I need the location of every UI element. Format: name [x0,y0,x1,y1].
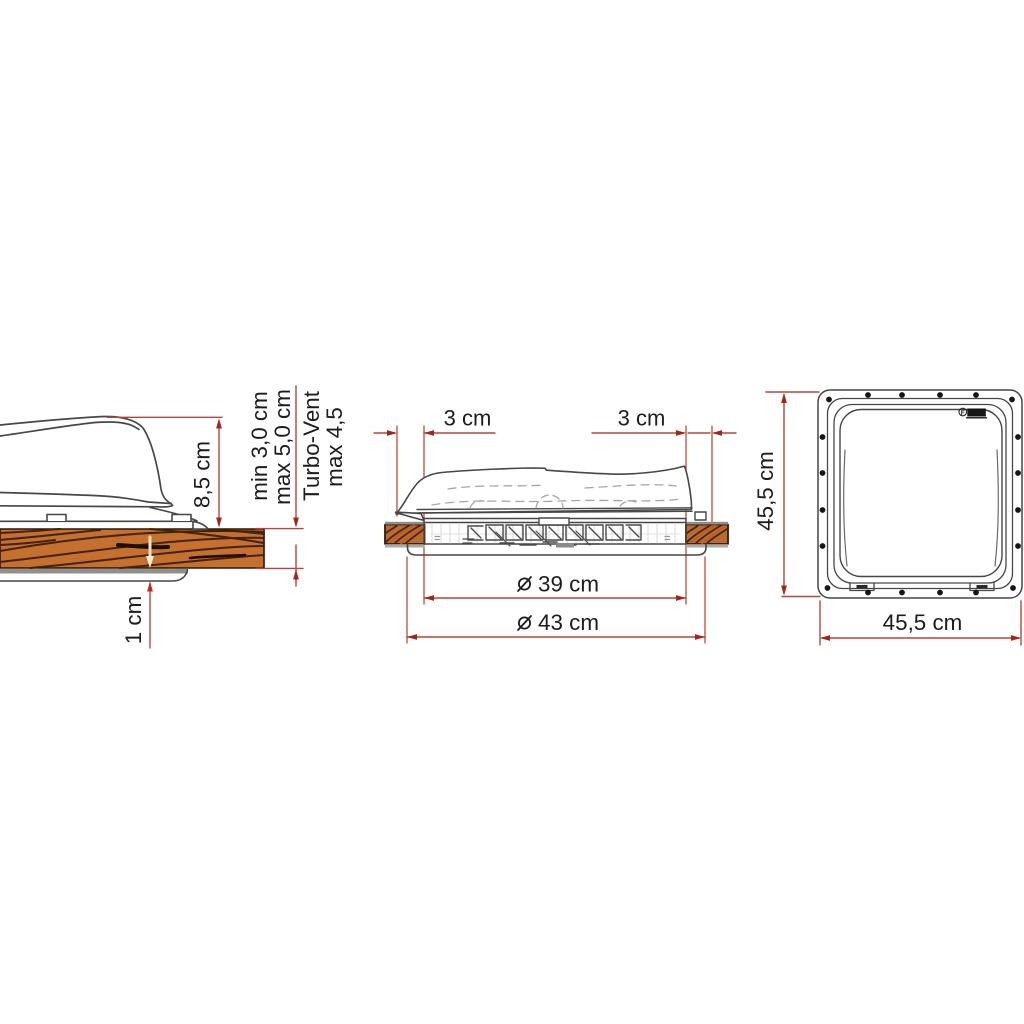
svg-text:F: F [961,410,965,417]
svg-text:43 cm: 43 cm [538,610,599,635]
svg-text:45,5 cm: 45,5 cm [753,451,778,531]
svg-text:Turbo-Vent: Turbo-Vent [299,390,324,501]
svg-text:min 3,0 cm: min 3,0 cm [247,391,272,501]
svg-text:max 4,5: max 4,5 [322,407,347,487]
svg-text:39 cm: 39 cm [538,572,599,597]
svg-text:max 5,0 cm: max 5,0 cm [270,389,295,505]
svg-text:45,5 cm: 45,5 cm [883,610,963,635]
svg-text:3 cm: 3 cm [444,406,492,431]
svg-text:1 cm: 1 cm [121,596,146,645]
svg-text:8,5 cm: 8,5 cm [189,441,214,508]
svg-text:3 cm: 3 cm [618,406,666,431]
svg-text:FIAMMA: FIAMMA [968,410,985,417]
